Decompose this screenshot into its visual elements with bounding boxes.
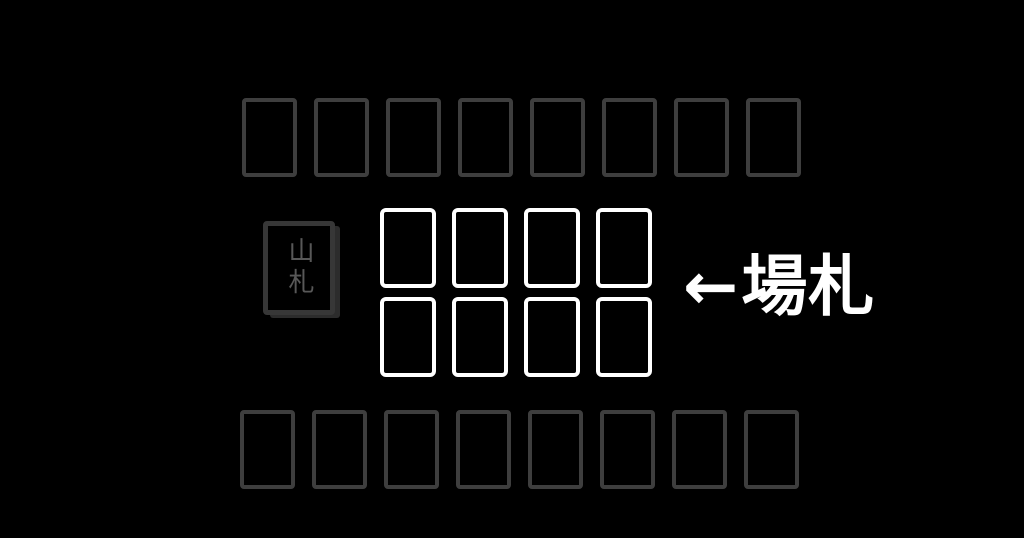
field-card[interactable] <box>596 297 652 377</box>
field-card[interactable] <box>452 297 508 377</box>
field-card[interactable] <box>596 208 652 288</box>
field-card[interactable] <box>524 208 580 288</box>
player-hand-card[interactable] <box>528 410 583 489</box>
player-hand-card[interactable] <box>240 410 295 489</box>
opponent-hand-card[interactable] <box>602 98 657 177</box>
opponent-hand-card[interactable] <box>386 98 441 177</box>
opponent-hand-card[interactable] <box>674 98 729 177</box>
player-hand-card[interactable] <box>672 410 727 489</box>
field-card[interactable] <box>524 297 580 377</box>
player-hand-card[interactable] <box>744 410 799 489</box>
player-hand-row <box>240 410 799 489</box>
field-card[interactable] <box>452 208 508 288</box>
field-cards-annotation-label: 場札 <box>741 248 875 325</box>
player-hand-card[interactable] <box>384 410 439 489</box>
opponent-hand-row <box>242 98 801 177</box>
player-hand-card[interactable] <box>456 410 511 489</box>
draw-pile-card[interactable]: 山札 <box>263 221 335 315</box>
opponent-hand-card[interactable] <box>314 98 369 177</box>
field-card[interactable] <box>380 208 436 288</box>
left-arrow-icon: ← <box>683 254 739 320</box>
card-game-layout-scene: 山札 ←場札 <box>0 0 1024 538</box>
field-cards-annotation: ←場札 <box>683 254 875 320</box>
opponent-hand-card[interactable] <box>746 98 801 177</box>
opponent-hand-card[interactable] <box>242 98 297 177</box>
opponent-hand-card[interactable] <box>458 98 513 177</box>
player-hand-card[interactable] <box>600 410 655 489</box>
player-hand-card[interactable] <box>312 410 367 489</box>
field-card-grid <box>380 208 652 377</box>
draw-pile-label: 山札 <box>286 237 312 299</box>
field-card[interactable] <box>380 297 436 377</box>
opponent-hand-card[interactable] <box>530 98 585 177</box>
